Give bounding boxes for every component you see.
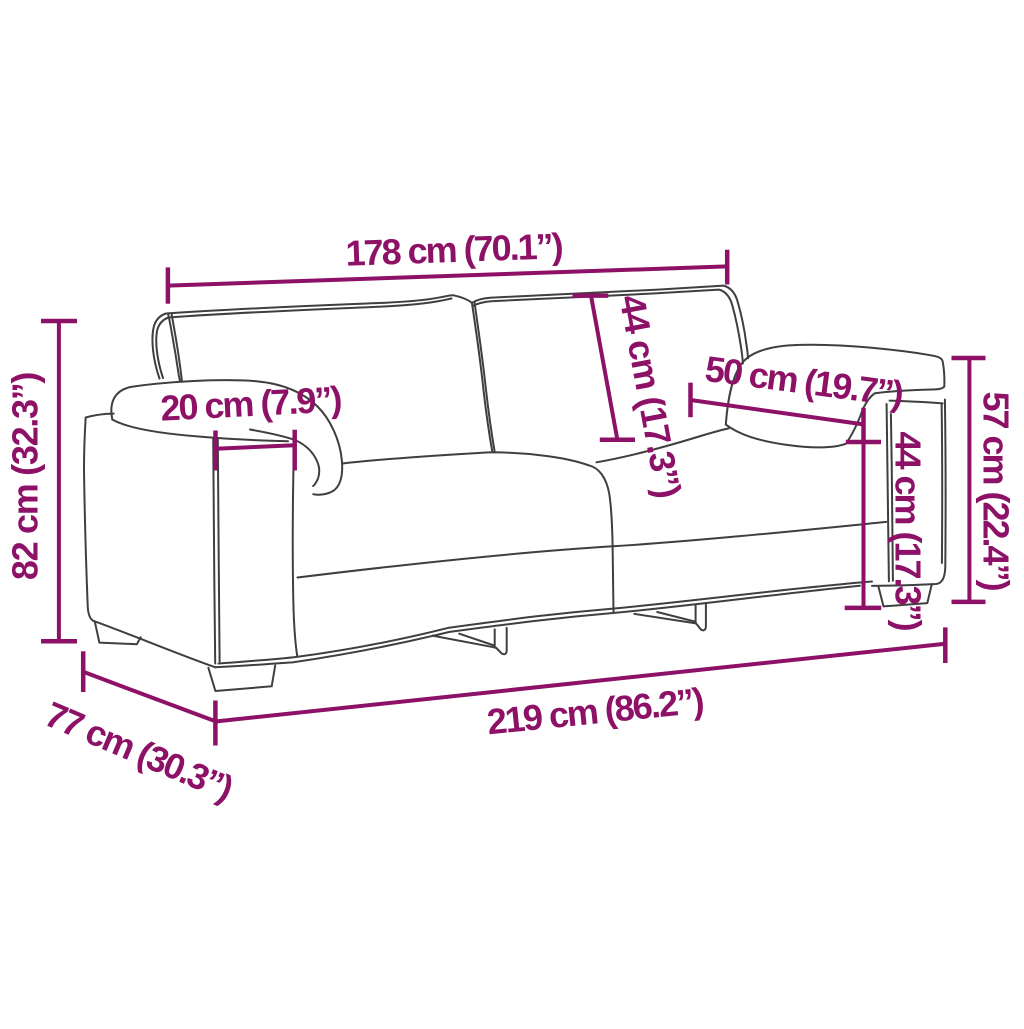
svg-text:178 cm (70.1”): 178 cm (70.1”) bbox=[345, 225, 563, 274]
svg-text:57 cm (22.4”): 57 cm (22.4”) bbox=[976, 391, 1017, 590]
svg-text:20 cm (7.9”): 20 cm (7.9”) bbox=[159, 378, 342, 428]
svg-text:82 cm (32.3”): 82 cm (32.3”) bbox=[5, 373, 46, 581]
svg-text:77 cm (30.3”): 77 cm (30.3”) bbox=[39, 693, 238, 809]
svg-text:44 cm (17.3”): 44 cm (17.3”) bbox=[611, 291, 689, 500]
svg-text:44 cm (17.3”): 44 cm (17.3”) bbox=[888, 431, 929, 630]
